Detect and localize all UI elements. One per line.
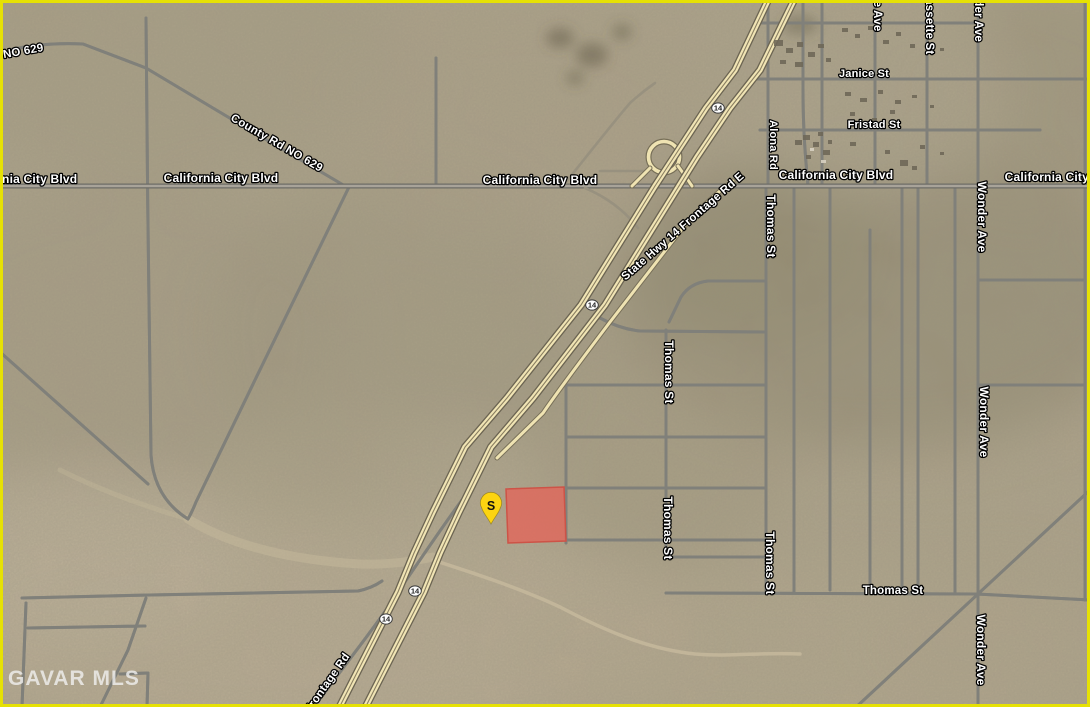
- road-label: Thomas St: [764, 194, 778, 257]
- map-viewport: 14141414 County Rd NO 629County Rd NO 62…: [0, 0, 1090, 707]
- road-label: Thomas St: [863, 585, 924, 597]
- road-label: California City Blvd: [0, 172, 77, 186]
- road-label: Thomas St: [662, 340, 676, 403]
- road-label: e Ave: [871, 1, 883, 32]
- watermark: GAVAR MLS: [8, 667, 140, 690]
- road-label: California City Blvd: [164, 171, 279, 185]
- marker-letter: S: [487, 499, 495, 513]
- road-label: Wonder Ave: [972, 0, 984, 42]
- road-label: Wonder Ave: [977, 387, 991, 458]
- road-label: Wonder Ave: [975, 182, 989, 253]
- svg-text:14: 14: [588, 301, 597, 310]
- road-label: Wonder Ave: [974, 615, 988, 686]
- svg-text:14: 14: [382, 615, 391, 624]
- road-label: California City Blvd: [1005, 170, 1090, 184]
- road-label: Janice St: [839, 68, 889, 80]
- highway-14-shield-icon: 14: [712, 103, 725, 113]
- road-label: Fristad St: [848, 119, 901, 131]
- svg-text:14: 14: [411, 587, 420, 596]
- highway-14-shield-icon: 14: [409, 586, 422, 596]
- road-label: California City Blvd: [483, 173, 598, 187]
- road-label: California City Blvd: [779, 168, 894, 182]
- road-label: Thomas St: [661, 496, 675, 559]
- road-label: Alona Rd: [767, 120, 779, 170]
- road-label: Thomas St: [763, 531, 777, 594]
- satellite-map[interactable]: 14141414 County Rd NO 629County Rd NO 62…: [0, 0, 1090, 707]
- highway-14-shield-icon: 14: [586, 300, 599, 310]
- road-label: Bassette St: [923, 0, 935, 54]
- parcel-highlight[interactable]: [506, 487, 566, 543]
- svg-text:14: 14: [714, 104, 723, 113]
- highway-14-shield-icon: 14: [380, 614, 393, 624]
